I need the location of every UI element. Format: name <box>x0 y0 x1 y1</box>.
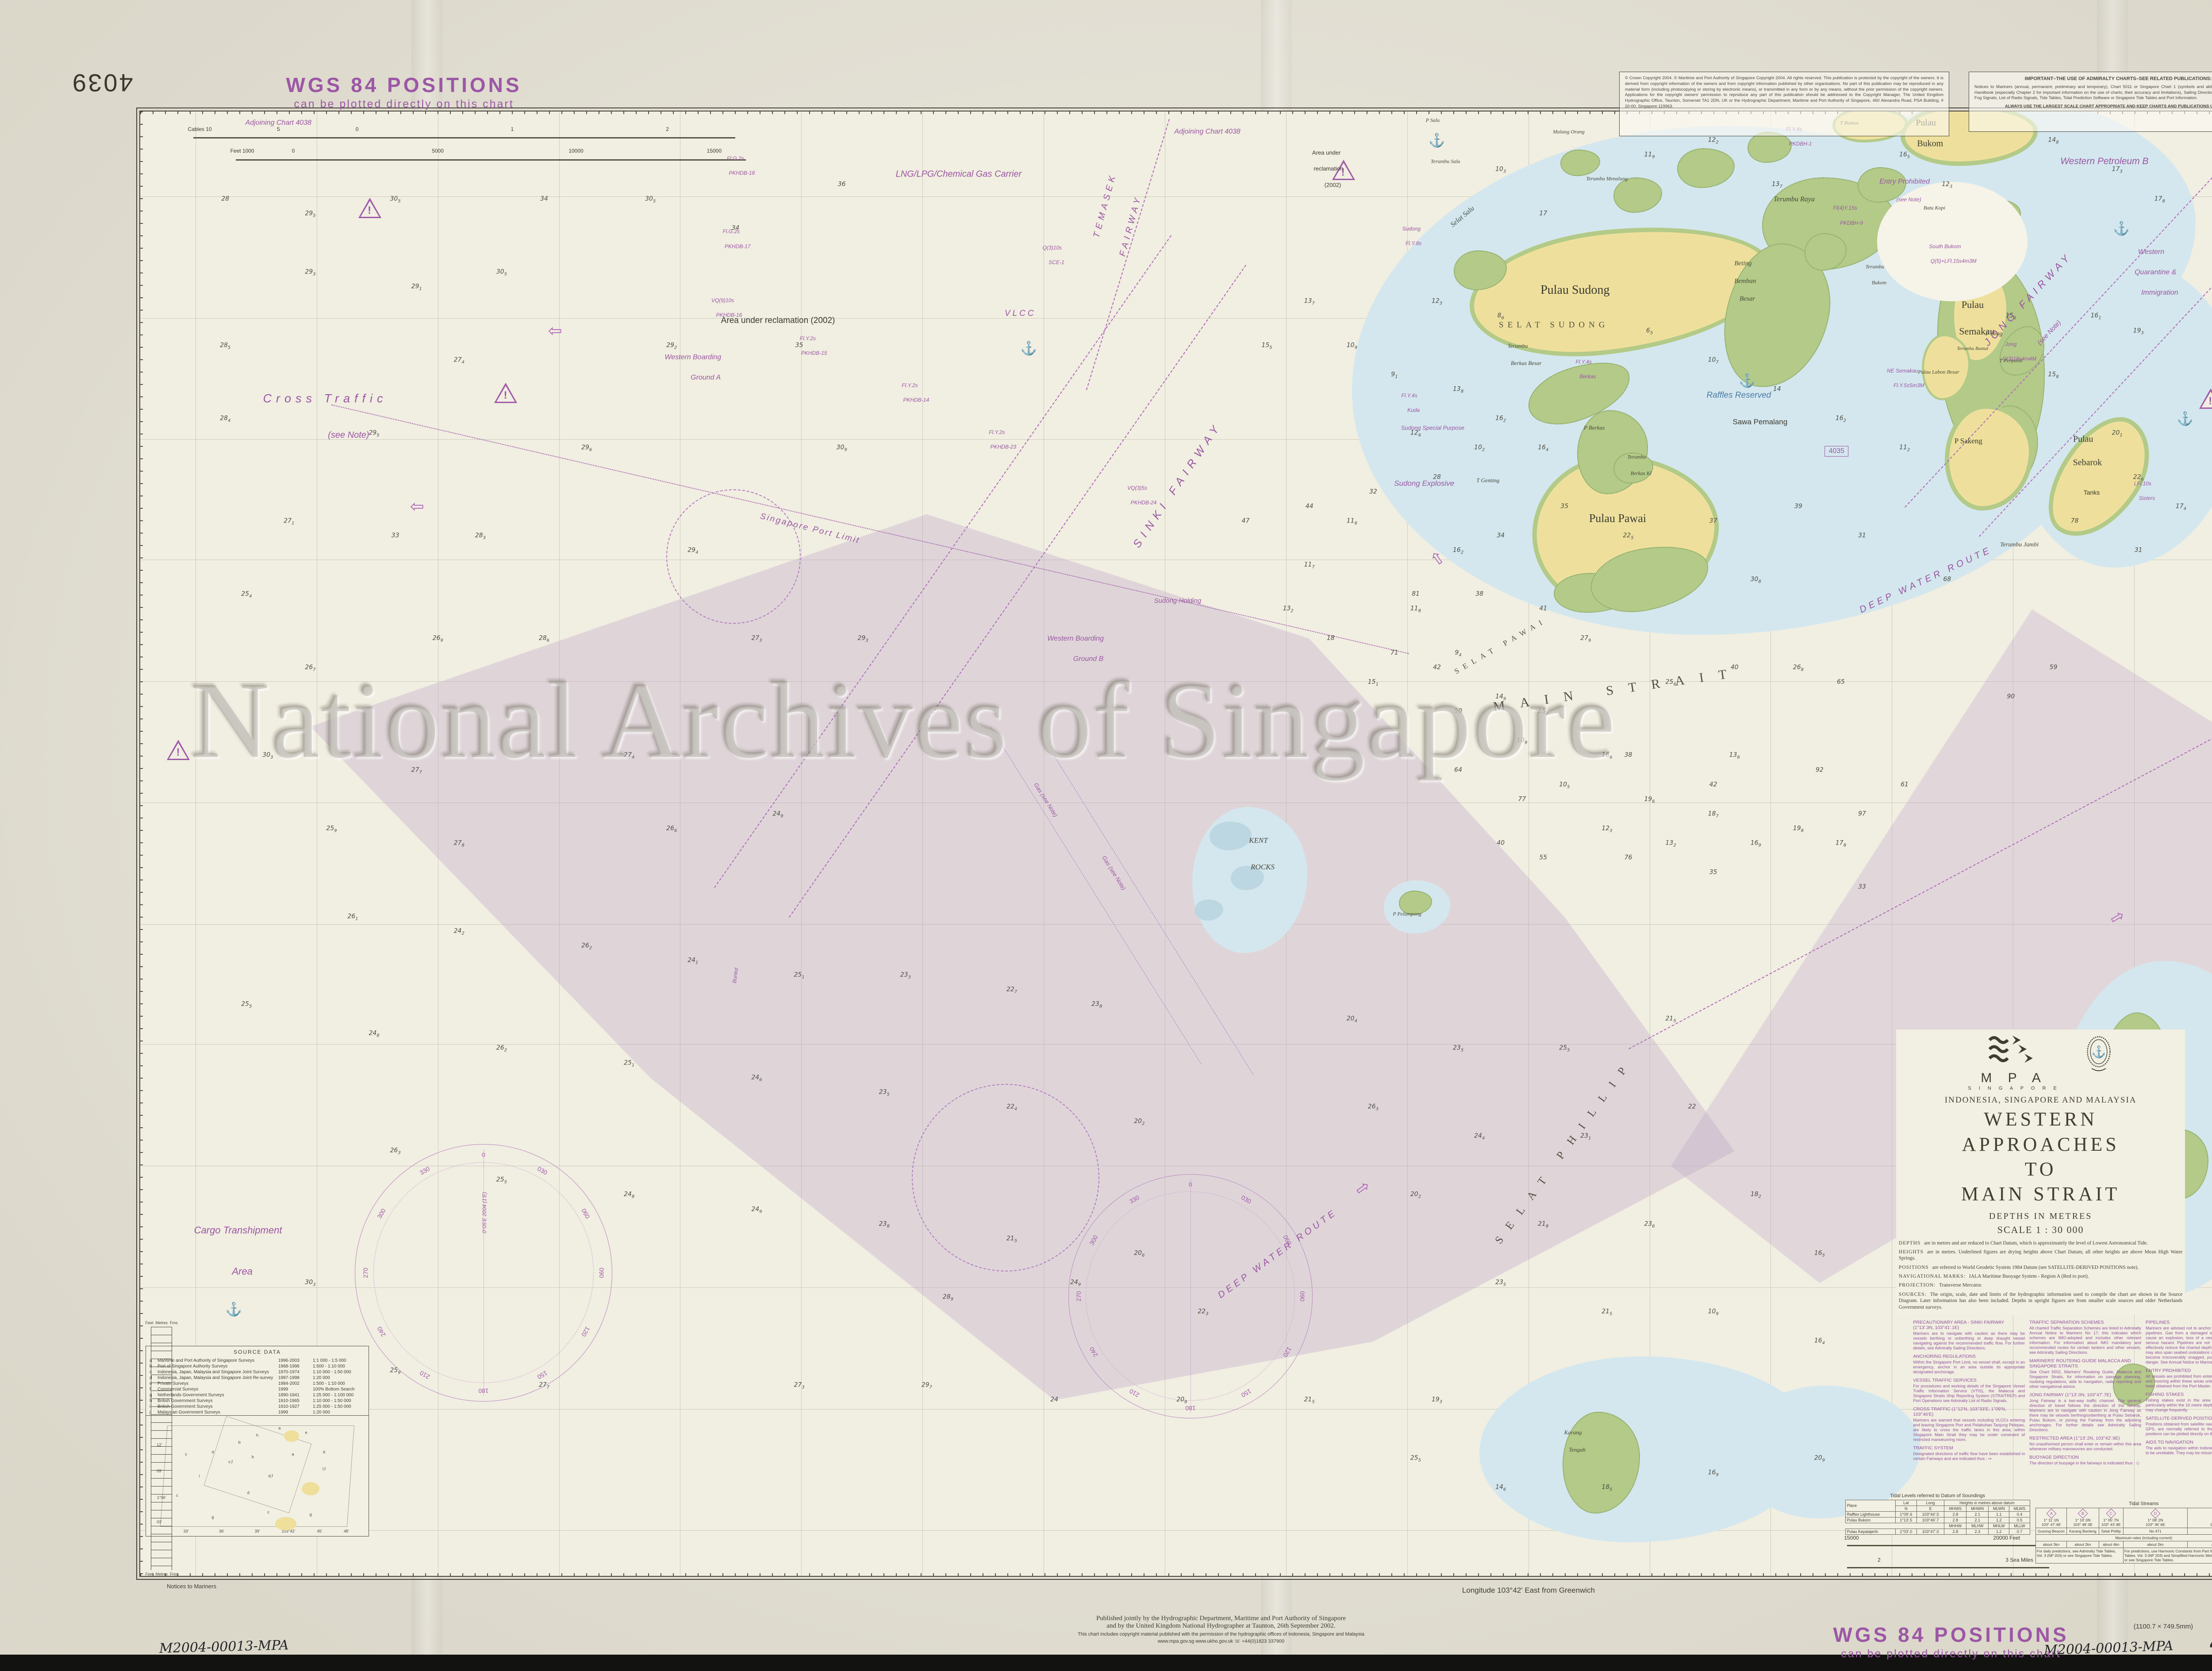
map-label: KENT <box>1249 836 1268 845</box>
map-label: Immigration <box>2141 289 2178 297</box>
station-diamond-icon: A <box>2046 1509 2056 1519</box>
title-note: PROJECTION:Transverse Mercator. <box>1899 1282 2182 1288</box>
depth-sounding: 138 <box>1453 385 1463 394</box>
map-label: Beting <box>1734 260 1751 268</box>
border-ticks-bottom <box>140 1573 2212 1576</box>
map-label: Pulau Pawai <box>1589 512 1646 525</box>
map-label: Bukom <box>1917 138 1943 149</box>
map-label: Western <box>2138 248 2164 256</box>
depth-sounding: 303 <box>305 1279 315 1287</box>
buoy-label: Fl.Y.4s <box>1575 359 1591 365</box>
depth-sounding: 38 <box>1475 591 1483 599</box>
depth-sounding: 116 <box>1347 517 1357 526</box>
depth-sounding: 266 <box>666 825 677 833</box>
depth-sounding: 236 <box>1644 1220 1655 1229</box>
depth-sounding: 198 <box>1793 825 1804 833</box>
hydrographic-office-crest: ⚓ <box>2084 1033 2113 1076</box>
mpa-waves-icon <box>1987 1033 2040 1068</box>
map-label: Adjoining Chart 4038 <box>1174 128 1240 136</box>
depth-sounding: 218 <box>1538 1220 1548 1229</box>
tidal-streams-table: Tidal Streams A 1° 11'.1N103° 47'.6EB 1°… <box>2035 1501 2212 1563</box>
depth-sounding: 123 <box>1432 298 1442 306</box>
depth-sounding: 193 <box>1432 1396 1442 1404</box>
depth-sounding: 118 <box>1410 605 1421 614</box>
diagram-island <box>275 1517 296 1530</box>
map-label: 1 <box>511 126 514 132</box>
map-label: LNG/LPG/Chemical Gas Carrier <box>896 169 1022 180</box>
crest-icon: ⚓ <box>2084 1033 2113 1074</box>
map-label: 5 <box>277 126 280 132</box>
boarding-ground-circle <box>912 1084 1099 1271</box>
map-label: Berkas Kl <box>1630 470 1651 476</box>
publication-note: Published jointly by the Hydrographic De… <box>1078 1615 1364 1644</box>
depth-sounding: 255 <box>1559 1045 1570 1053</box>
diagram-island <box>284 1430 299 1442</box>
depth-sounding: 136 <box>1729 752 1740 760</box>
handwritten-accession: M2004-00013-MPA <box>159 1637 289 1656</box>
map-label: Terumbu Raya <box>1774 196 1815 204</box>
depth-sounding: 238 <box>1091 1001 1102 1009</box>
map-label: Besar <box>1740 295 1755 303</box>
map-label: Terumbu <box>1628 454 1646 461</box>
depth-sounding: 227 <box>1006 986 1017 995</box>
depth-sounding: 196 <box>1644 795 1655 804</box>
map-label: Feet 1000 <box>230 148 254 154</box>
depth-sounding: 246 <box>751 1074 762 1082</box>
map-label: 15000 <box>707 148 722 154</box>
depth-sounding: 295 <box>369 430 379 438</box>
depth-sounding: 293 <box>858 634 868 643</box>
boarding-ground-circle <box>666 489 801 624</box>
map-label: Sudong Special Purpose <box>1401 424 1464 431</box>
warning-triangle-icon <box>358 198 381 218</box>
depth-sounding: 34 <box>1497 532 1505 540</box>
warning-triangle-icon <box>494 383 517 403</box>
depth-sounding: 61 <box>1901 781 1909 789</box>
depth-sounding: 223 <box>1198 1308 1208 1317</box>
buoy-label: PKHDB-18 <box>729 170 755 176</box>
depth-sounding: 28 <box>221 195 229 204</box>
depth-sounding: 178 <box>1836 840 1846 848</box>
depth-sounding: 91 <box>1391 371 1398 379</box>
stream-station: E 1° 07'.3N103° 43'.0E <box>2188 1508 2212 1528</box>
buoy-label: NE Semakau <box>1887 368 1918 374</box>
depth-sounding: 187 <box>1708 810 1719 818</box>
depth-sounding: 164 <box>1814 1337 1825 1346</box>
traffic-flow-arrow-icon: ⇨ <box>548 321 562 341</box>
stream-station: D 1° 08'.2N103° 36'.6E <box>2123 1508 2187 1528</box>
map-label: Cables 10 <box>188 126 212 132</box>
map-label: Bukom <box>1872 280 1886 286</box>
map-label: 2 <box>666 126 669 132</box>
map-label: 5000 <box>432 148 444 154</box>
depth-sounding: 47 <box>1242 517 1250 526</box>
stream-name: No 471a <box>2188 1528 2212 1535</box>
map-label: Sudong Explosive <box>1394 479 1454 488</box>
map-label: Area under <box>1312 149 1340 156</box>
station-diamond-icon: B <box>2078 1509 2088 1519</box>
depth-sounding: 109 <box>1347 342 1357 350</box>
depth-sounding: 165 <box>1899 151 1910 160</box>
depth-sounding: 255 <box>1410 1455 1421 1463</box>
depth-sounding: 274 <box>454 356 465 365</box>
notes-column-3: PIPELINESMariners are advised not to anc… <box>2146 1317 2212 1490</box>
buoy-label: Sisters <box>2139 495 2155 501</box>
map-label: Quarantine & <box>2135 269 2176 277</box>
buoy-label: Fl.Y.2s <box>800 335 816 342</box>
depth-sounding: 65 <box>1646 327 1653 335</box>
notes-column-2: TRAFFIC SEPARATION SCHEMESAll charted Tr… <box>2029 1317 2141 1490</box>
depth-sounding: 132 <box>1665 840 1676 848</box>
depth-sounding: 18 <box>1327 634 1335 643</box>
note: ENTRY PROHIBITEDAll vessels are prohibit… <box>2146 1368 2212 1389</box>
depth-sounding: 174 <box>2176 503 2186 511</box>
stream-station: B 1° 10'.0N103° 48'.0E <box>2067 1508 2099 1528</box>
depth-sounding: 255 <box>496 1176 507 1185</box>
map-label: TEMASEK <box>1092 172 1119 239</box>
buoy-label: PKHDB-23 <box>990 444 1016 450</box>
map-label: Terumbu Jambi <box>2000 542 2039 549</box>
buoy-label: PKHDB-15 <box>801 350 827 356</box>
depth-sounding: 296 <box>581 444 592 453</box>
sea-miles-scale-bar <box>1847 1567 2049 1568</box>
depth-sounding: 178 <box>2154 195 2165 204</box>
buoy-label: LFl.10s <box>2134 480 2151 487</box>
depth-sounding: 259 <box>390 1367 400 1375</box>
depth-sounding: 291 <box>411 283 422 292</box>
buoy-label: Fl.G.2s <box>722 228 740 234</box>
stream-name: Selat Phillip <box>2099 1528 2123 1535</box>
anchor-icon: ⚓ <box>226 1302 242 1317</box>
depth-sounding: 259 <box>326 825 337 833</box>
note: TRAFFIC SYSTEMDesignated directions of t… <box>1913 1445 2025 1461</box>
note: JONG FAIRWAY (1°13'.0N, 103°47'.7E)Jong … <box>2029 1392 2141 1433</box>
map-label: P Pelampong <box>1393 910 1421 917</box>
depth-sounding: 158 <box>2048 371 2058 379</box>
map-label: Malang Orang <box>1553 129 1585 135</box>
depth-sounding: 117 <box>1304 561 1315 570</box>
depth-sounding: 97 <box>1858 810 1866 818</box>
depth-sounding: 123 <box>1601 825 1612 833</box>
buoy-label: VQ(3)5s <box>1127 485 1147 491</box>
compass-degree-label: 150 <box>536 1369 549 1381</box>
depth-sounding: 248 <box>369 1030 379 1038</box>
wgs84-heading-bottom: WGS 84 POSITIONS can be plotted directly… <box>1833 1623 2069 1660</box>
chart-dimensions: (1100.7 × 749.5mm) <box>2134 1623 2193 1630</box>
diagram-letter: g <box>310 1512 312 1517</box>
buoy-label: SCE-1 <box>1048 259 1064 265</box>
depth-sounding: 165 <box>1814 1249 1825 1258</box>
depth-sounding: 90 <box>2007 693 2015 702</box>
map-label: Area <box>232 1266 252 1277</box>
mpa-logo: M P A S I N G A P O R E <box>1968 1033 2059 1091</box>
diagram-letter: i <box>199 1474 200 1478</box>
map-label: reclamation <box>1313 165 1343 172</box>
traffic-flow-arrow-icon: ⇨ <box>410 497 424 517</box>
note: ANCHORING REGULATIONSWithin the Singapor… <box>1913 1354 2025 1375</box>
depth-sounding: 33 <box>1858 884 1866 892</box>
diagram-letter: c <box>267 1510 269 1514</box>
buoy-label: South Bukom <box>1929 243 1961 250</box>
tide-row: Raffles Lighthouse1°09'.6103°44'.5 2.82.… <box>1845 1511 2030 1517</box>
depth-sounding: 109 <box>1708 1308 1719 1317</box>
depth-sounding: 77 <box>1518 795 1526 804</box>
scale-caption: Feet Metres Fms <box>133 1572 190 1576</box>
depth-sounding: 137 <box>1304 298 1315 306</box>
depth-sounding: 55 <box>1539 854 1547 863</box>
depth-sounding: 284 <box>220 415 230 423</box>
diagram-letter: h <box>256 1433 258 1437</box>
depth-sounding: 279 <box>1580 634 1591 643</box>
depth-sounding: 162 <box>1453 547 1463 555</box>
depth-sounding: 59 <box>2050 664 2058 672</box>
depth-sounding: 295 <box>305 210 315 218</box>
note: TRAFFIC SEPARATION SCHEMESAll charted Tr… <box>2029 1320 2141 1355</box>
depth-sounding: 162 <box>1495 415 1506 423</box>
depth-sounding: 107 <box>1708 356 1719 365</box>
depth-sounding: 208 <box>1176 1396 1187 1404</box>
buoy-label: Berkas <box>1580 373 1596 380</box>
buoy-label: Q(5)+LFl.15s4m3M <box>1931 258 1977 264</box>
buoy-label: Q(3)10s <box>1043 245 1062 251</box>
map-label: Sudong Holding <box>1154 597 1201 604</box>
depth-sounding: 242 <box>454 927 465 936</box>
depth-sounding: 31 <box>2135 547 2143 555</box>
depth-sounding: 94 <box>1455 649 1461 657</box>
depth-sounding: 268 <box>1793 664 1804 672</box>
depth-sounding: 24 <box>1050 1396 1058 1404</box>
depth-sounding: 251 <box>794 971 804 980</box>
depth-sounding: 305 <box>496 269 507 277</box>
depth-sounding: 148 <box>2048 137 2058 145</box>
map-label: Pulau Sudong <box>1540 283 1609 297</box>
depth-sounding: 81 <box>1412 591 1420 599</box>
depth-sounding: 263 <box>390 1147 400 1156</box>
buoy-label: Kuda <box>1407 407 1420 413</box>
depth-sounding: 161 <box>2090 312 2101 321</box>
depth-sounding: 162 <box>1836 415 1846 423</box>
archives-watermark: National Archives of Singapore <box>190 657 1617 784</box>
compass-rose: 0030060090120150180210240270300330 <box>355 1144 612 1402</box>
depth-sounding: 119 <box>1644 151 1655 160</box>
depth-sounding: 233 <box>900 971 911 980</box>
station-diamond-icon: C <box>2106 1509 2116 1519</box>
compass-degree-label: 0 <box>482 1151 485 1158</box>
tide-row: Pulau Bukom1°13'.5103°46'.7 2.82.11.20.5 <box>1845 1517 2030 1523</box>
map-label: 20000 Feet <box>1993 1535 2020 1541</box>
depth-sounding: 44 <box>1306 503 1313 511</box>
depth-sounding: 292 <box>666 342 677 350</box>
buoy-label: PKHDB-17 <box>725 243 751 250</box>
title-block: M P A S I N G A P O R E ⚓ INDONESIA, SIN… <box>1896 1029 2185 1315</box>
depth-sounding: 71 <box>1390 649 1398 657</box>
buoy-label: PKHDB-24 <box>1131 499 1157 506</box>
depth-sounding: 293 <box>305 269 315 277</box>
depth-sounding: 204 <box>1347 1015 1357 1024</box>
buoy-label: PKDBH-9 <box>1840 220 1863 226</box>
map-label: Terumbu <box>1866 263 1884 270</box>
diagram-letter: d <box>247 1490 250 1495</box>
chart-scale: SCALE 1 : 30 000 <box>1899 1224 2182 1236</box>
map-label: Western Boarding <box>664 353 721 361</box>
mariner-notes: PRECAUTIONARY AREA - SINKI FAIRWAY (1°13… <box>1913 1317 2212 1490</box>
map-label: T Genting <box>1476 477 1499 484</box>
compass-degree-label: 180 <box>478 1387 488 1394</box>
compass-degree-label: 150 <box>1240 1387 1252 1399</box>
map-label: VLCC <box>1005 309 1036 319</box>
map-label: Bemban <box>1734 277 1756 285</box>
diagram-letter: 39' <box>255 1529 260 1533</box>
diagram-letter: d <box>323 1450 325 1454</box>
map-label: Pulau <box>1962 299 1984 311</box>
buoy-label: Q(3)10s4m4M <box>2002 356 2036 362</box>
depth-sounding: 271 <box>284 517 294 526</box>
depth-sounding: 241 <box>687 957 698 965</box>
map-label: Terumbu Salu <box>1431 158 1460 165</box>
depth-sounding: 209 <box>1814 1455 1825 1463</box>
depth-sounding: 112 <box>1899 444 1910 453</box>
map-area: ⚓⚓⚓⚓⚓⚓ ⇨⇨⇨⇨⇨ 282953053430534362932913052… <box>140 111 2212 1576</box>
map-label: P Salu <box>1426 117 1440 123</box>
title-note: POSITIONSare referred to World Geodetic … <box>1899 1264 2182 1271</box>
warning-triangle-icon <box>167 740 190 760</box>
buoy-label: Fl(4)Y.15s <box>1833 205 1857 211</box>
map-label: Sebarok <box>2073 458 2102 468</box>
compass-degree-label: 270 <box>362 1268 369 1278</box>
map-label: (see Note) <box>1897 196 1921 203</box>
depths-units: DEPTHS IN METRES <box>1899 1211 2182 1222</box>
depth-sounding: 31 <box>1858 532 1866 540</box>
depth-sounding: 36 <box>838 181 846 189</box>
diagram-letter: d <box>211 1450 214 1454</box>
depth-sounding: 34 <box>540 195 548 204</box>
depth-sounding: 215 <box>1601 1308 1612 1317</box>
buoy-label: VQ(9)10s <box>711 297 734 303</box>
depth-sounding: 185 <box>1601 1484 1612 1492</box>
depth-sounding: 244 <box>1474 1133 1485 1141</box>
depth-sounding: 35 <box>1560 503 1568 511</box>
depth-sounding: 254 <box>241 591 252 599</box>
map-label: 2 <box>1878 1557 1881 1563</box>
depth-sounding: 146 <box>1495 1484 1506 1492</box>
depth-sounding: 132 <box>1283 605 1294 614</box>
depth-sounding: 37 <box>1709 517 1717 526</box>
depth-sounding: 137 <box>1772 181 1782 189</box>
depth-sounding: 297 <box>922 1381 932 1390</box>
depth-sounding: 273 <box>751 634 762 643</box>
feet-scale-bar <box>1847 1545 2038 1546</box>
depth-sounding: 35 <box>1709 869 1717 877</box>
buoy-label: Fl.G.2s <box>727 155 744 161</box>
map-label: 4035 <box>1825 446 1849 457</box>
map-label: Terumbu Menalung <box>1586 176 1628 182</box>
diagram-letter: b <box>252 1455 254 1459</box>
anchor-icon: ⚓ <box>1429 133 1445 149</box>
compass-degree-label: 330 <box>1128 1194 1141 1205</box>
depth-sounding: 193 <box>2133 327 2144 335</box>
map-label: Batu Kopi <box>1924 205 1945 211</box>
map-label: Sawa Pemalang <box>1733 418 1788 426</box>
buoy-label: Jong <box>2005 341 2016 347</box>
diagram-letter: d,f <box>269 1474 273 1478</box>
compass-degree-label: 120 <box>1282 1346 1293 1358</box>
anchor-icon: ⚓ <box>1021 341 1037 357</box>
stream-station: A 1° 11'.1N103° 47'.6E <box>2035 1508 2067 1528</box>
depth-sounding: 277 <box>539 1381 549 1390</box>
depth-sounding: 17 <box>1539 210 1547 218</box>
depth-sounding: 286 <box>539 634 549 643</box>
longitude-origin-note: Longitude 103°42' East from Greenwich <box>1462 1586 1595 1595</box>
diagram-island <box>302 1482 319 1495</box>
stream-rate: about 4kn <box>2099 1541 2123 1548</box>
depth-sounding: 202 <box>1134 1118 1144 1126</box>
depth-sounding: 309 <box>837 444 847 453</box>
compass-degree-label: 210 <box>418 1369 430 1381</box>
depth-sounding: 308 <box>1751 576 1761 584</box>
buoy-label: Fl.Y.2s <box>902 382 918 388</box>
wgs84-heading-top: WGS 84 POSITIONS can be plotted directly… <box>286 73 522 111</box>
depth-sounding: 92 <box>1816 766 1824 775</box>
diagram-letter: c,f <box>228 1460 233 1464</box>
depth-sounding: 269 <box>433 634 443 643</box>
depth-sounding: 283 <box>475 532 486 540</box>
depth-sounding: 235 <box>1453 1045 1463 1053</box>
compass-degree-label: 120 <box>580 1325 591 1338</box>
map-label: Raffles Reserved <box>1706 391 1771 400</box>
depth-sounding: 305 <box>645 195 656 204</box>
note: AIDS TO NAVIGATIONThe aids to navigation… <box>2146 1440 2212 1456</box>
map-label: 15000 <box>1844 1535 1859 1541</box>
map-label: Terumbu Buntal <box>1957 346 1989 351</box>
title-block-notes: DEPTHSare in metres and are reduced to C… <box>1899 1240 2182 1310</box>
notes-column-1: PRECAUTIONARY AREA - SINKI FAIRWAY (1°13… <box>1913 1317 2025 1490</box>
map-label: Terumbu <box>1508 342 1528 350</box>
compass-degree-label: 090 <box>1299 1291 1306 1301</box>
compass-degree-label: 030 <box>536 1165 549 1176</box>
depth-sounding: 235 <box>879 1088 890 1097</box>
compass-degree-label: 270 <box>1075 1291 1082 1301</box>
compass-degree-label: 030 <box>1240 1194 1252 1205</box>
map-label: 10000 <box>568 148 583 154</box>
depth-sounding: 261 <box>347 913 358 921</box>
title-note: NAVIGATIONAL MARKS:IALA Maritime Buoyage… <box>1899 1273 2182 1279</box>
anchor-icon: ⚓ <box>2113 221 2130 236</box>
chart-number-top: 4039 <box>71 69 133 97</box>
depth-conversion-scale: Feet Metres Fms Feet Metres Fms <box>133 1321 190 1582</box>
depth-sounding: 182 <box>1751 1191 1761 1199</box>
map-label: SELAT SUDONG <box>1499 320 1609 330</box>
note: RESTRICTED AREA (1°13'.2N, 103°42'.9E)No… <box>2029 1436 2141 1452</box>
depth-sounding: 249 <box>751 1206 762 1214</box>
title-note: SOURCES:The origin, scale, date and limi… <box>1899 1291 2182 1310</box>
compass-degree-label: 060 <box>580 1207 591 1220</box>
note: BUOYAGE DIRECTIONThe direction of buoyag… <box>2029 1455 2141 1466</box>
copyright-notice: © Crown Copyright 2004. © Maritime and P… <box>1619 72 1949 136</box>
compass-degree-label: 240 <box>1088 1346 1099 1358</box>
map-label: 3 Sea Miles <box>2005 1557 2033 1563</box>
notices-note: Notices to Mariners <box>167 1583 216 1590</box>
title-note: DEPTHSare in metres and are reduced to C… <box>1899 1240 2182 1246</box>
chart-region: INDONESIA, SINGAPORE AND MALAYSIA <box>1899 1095 2182 1105</box>
depth-sounding: 33 <box>392 532 399 540</box>
depth-sounding: 14 <box>1773 385 1781 394</box>
compass-degree-label: 180 <box>1185 1405 1195 1412</box>
depth-sounding: 262 <box>581 942 592 950</box>
depth-sounding: 173 <box>2112 166 2123 174</box>
depth-sounding: 38 <box>1624 752 1632 760</box>
depth-sounding: 249 <box>772 810 783 818</box>
depth-sounding: 40 <box>1497 840 1505 848</box>
